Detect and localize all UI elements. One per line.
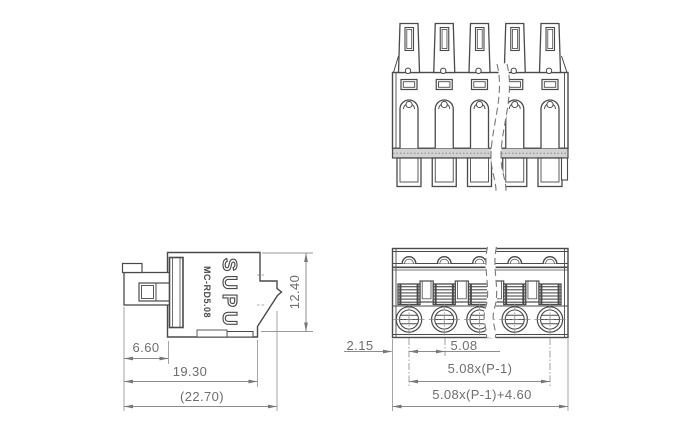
bottom-view bbox=[393, 247, 569, 338]
dim-pitch-span: 5.08x(P-1) bbox=[424, 362, 536, 375]
drawing-linework bbox=[0, 0, 680, 440]
dim-edge-offset: 2.15 bbox=[341, 339, 379, 352]
dim-pitch: 5.08 bbox=[441, 339, 487, 352]
technical-drawing-canvas: 6.60 19.30 (22.70) 12.40 2.15 5.08 5.08x… bbox=[0, 0, 680, 440]
dim-body-depth: 19.30 bbox=[163, 365, 217, 378]
dim-overall-depth: (22.70) bbox=[169, 390, 235, 403]
brand-logo: SUPU bbox=[216, 258, 242, 324]
front-view bbox=[393, 24, 569, 192]
dim-height: 12.40 bbox=[288, 269, 302, 315]
model-number: MC-RD5.08 bbox=[201, 260, 213, 324]
dim-plug-depth: 6.60 bbox=[124, 341, 168, 354]
dim-overall-width: 5.08x(P-1)+4.60 bbox=[404, 388, 560, 401]
